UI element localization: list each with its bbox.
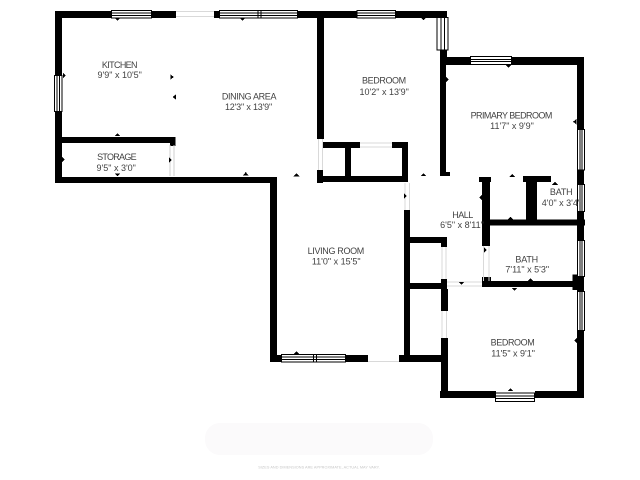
svg-text:KITCHEN: KITCHEN — [102, 60, 137, 70]
svg-text:4'0" x 3'4": 4'0" x 3'4" — [542, 198, 581, 208]
svg-text:DINING AREA: DINING AREA — [222, 92, 277, 102]
svg-text:SIZES AND DIMENSIONS ARE APPRO: SIZES AND DIMENSIONS ARE APPROXIMATE, AC… — [258, 466, 380, 470]
svg-text:BEDROOM: BEDROOM — [491, 337, 535, 347]
svg-text:10'2" x 13'9": 10'2" x 13'9" — [360, 87, 409, 97]
svg-text:11'7" x 9'9": 11'7" x 9'9" — [490, 121, 534, 131]
svg-text:11'0" x 15'5": 11'0" x 15'5" — [312, 257, 361, 267]
svg-text:6'5" x 8'11": 6'5" x 8'11" — [440, 220, 484, 230]
svg-text:9'5" x 3'0": 9'5" x 3'0" — [97, 163, 136, 173]
svg-text:BATH: BATH — [515, 255, 538, 265]
svg-text:7'11" x 5'3": 7'11" x 5'3" — [505, 264, 549, 274]
svg-text:PRIMARY BEDROOM: PRIMARY BEDROOM — [471, 111, 552, 121]
svg-text:11'5" x 9'1": 11'5" x 9'1" — [491, 348, 535, 358]
svg-text:LIVING ROOM: LIVING ROOM — [308, 246, 364, 256]
svg-text:BEDROOM: BEDROOM — [362, 75, 406, 85]
svg-text:STORAGE: STORAGE — [97, 152, 137, 162]
svg-text:9'9" x 10'5": 9'9" x 10'5" — [98, 70, 142, 80]
svg-text:BATH: BATH — [550, 187, 573, 197]
svg-text:HALL: HALL — [452, 210, 473, 220]
svg-text:12'3" x 13'9": 12'3" x 13'9" — [225, 102, 272, 112]
